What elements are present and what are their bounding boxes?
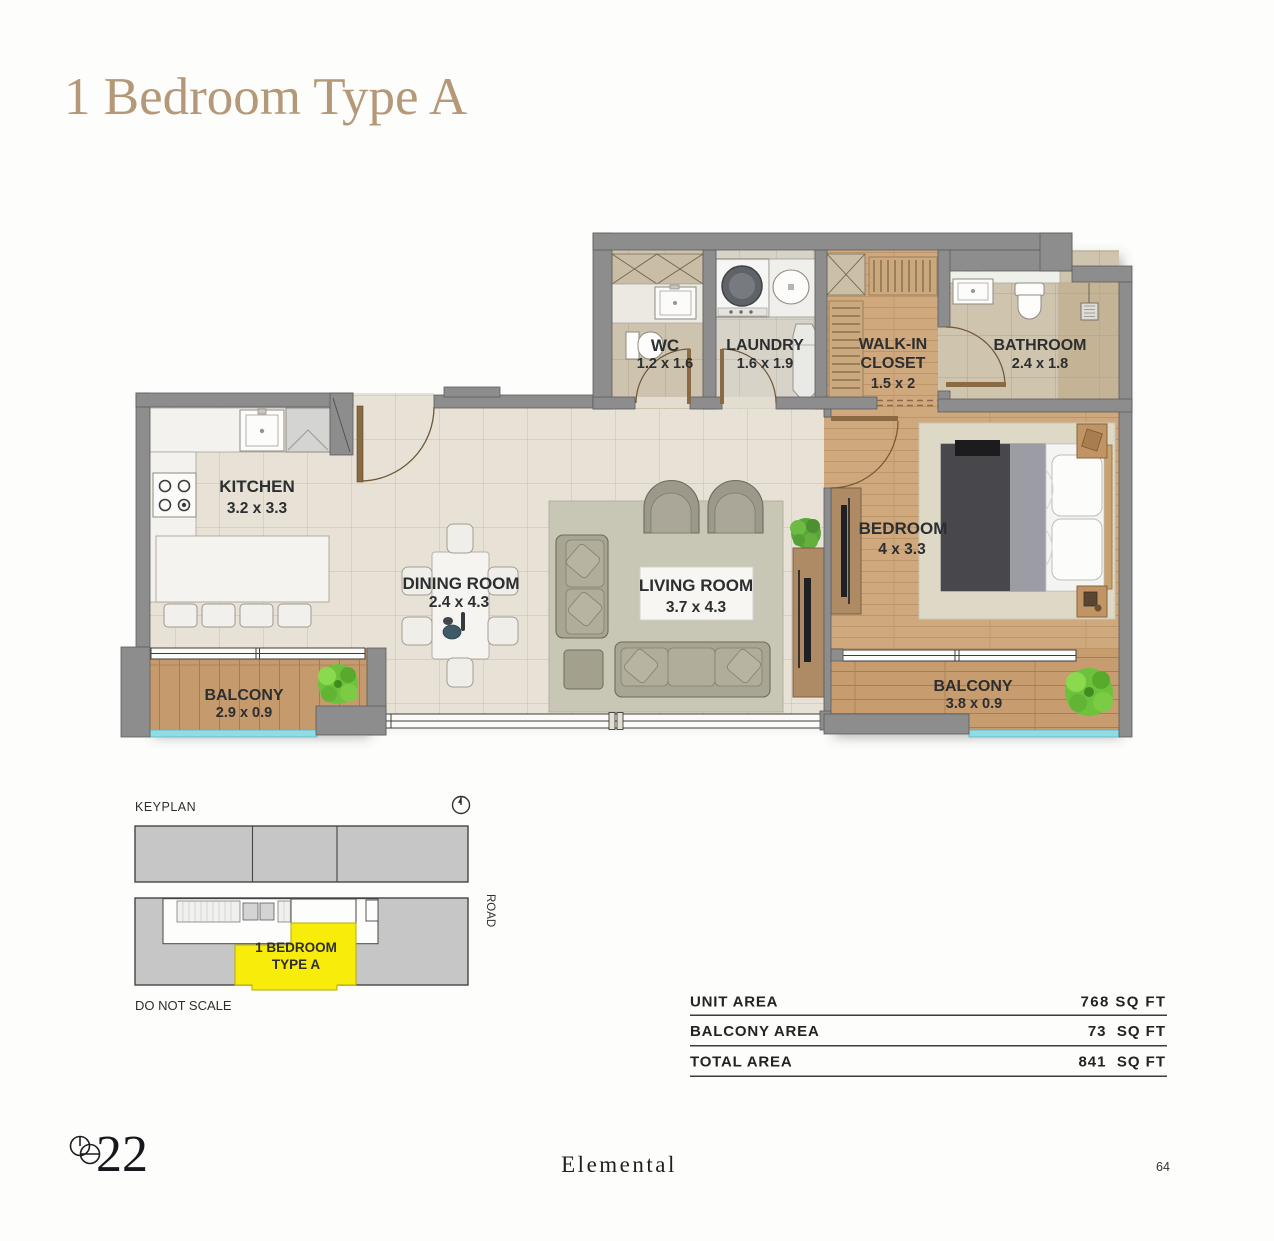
- svg-text:841 SQ FT: 841 SQ FT: [1078, 1054, 1166, 1071]
- svg-text:1.5 x 2: 1.5 x 2: [871, 376, 915, 392]
- svg-text:1.6 x 1.9: 1.6 x 1.9: [737, 356, 793, 372]
- svg-text:KITCHEN: KITCHEN: [219, 477, 295, 496]
- svg-text:2.4 x 4.3: 2.4 x 4.3: [429, 594, 490, 611]
- svg-text:BATHROOM: BATHROOM: [993, 337, 1086, 354]
- svg-text:DINING ROOM: DINING ROOM: [402, 574, 519, 593]
- svg-text:2.9 x 0.9: 2.9 x 0.9: [216, 705, 272, 721]
- svg-text:3.2 x 3.3: 3.2 x 3.3: [227, 500, 288, 517]
- svg-text:BALCONY: BALCONY: [204, 687, 283, 704]
- svg-text:TOTAL AREA: TOTAL AREA: [690, 1054, 792, 1071]
- svg-text:CLOSET: CLOSET: [861, 355, 926, 372]
- svg-text:73 SQ FT: 73 SQ FT: [1088, 1023, 1166, 1040]
- svg-text:4 x 3.3: 4 x 3.3: [878, 541, 926, 558]
- svg-text:Elemental: Elemental: [561, 1152, 677, 1177]
- svg-text:BEDROOM: BEDROOM: [859, 519, 948, 538]
- svg-text:LAUNDRY: LAUNDRY: [726, 337, 804, 354]
- svg-text:2.4 x 1.8: 2.4 x 1.8: [1012, 356, 1068, 372]
- svg-text:768 SQ FT: 768 SQ FT: [1081, 994, 1167, 1011]
- svg-text:BALCONY AREA: BALCONY AREA: [690, 1023, 820, 1040]
- svg-text:TYPE A: TYPE A: [272, 957, 321, 972]
- svg-text:1.2 x 1.6: 1.2 x 1.6: [637, 356, 693, 372]
- svg-text:1 BEDROOM: 1 BEDROOM: [255, 940, 337, 955]
- svg-text:LIVING ROOM: LIVING ROOM: [639, 576, 753, 595]
- svg-text:UNIT AREA: UNIT AREA: [690, 994, 778, 1011]
- svg-text:WC: WC: [651, 336, 679, 355]
- svg-text:DO NOT SCALE: DO NOT SCALE: [135, 998, 232, 1013]
- svg-text:KEYPLAN: KEYPLAN: [135, 800, 196, 814]
- svg-text:BALCONY: BALCONY: [933, 678, 1012, 695]
- svg-text:3.7 x 4.3: 3.7 x 4.3: [666, 599, 727, 616]
- svg-text:1 Bedroom Type A: 1 Bedroom Type A: [64, 68, 467, 126]
- svg-text:22: 22: [96, 1126, 148, 1183]
- svg-text:64: 64: [1156, 1160, 1170, 1174]
- svg-text:ROAD: ROAD: [484, 894, 496, 927]
- svg-text:3.8 x 0.9: 3.8 x 0.9: [946, 696, 1002, 712]
- svg-text:WALK-IN: WALK-IN: [859, 336, 927, 353]
